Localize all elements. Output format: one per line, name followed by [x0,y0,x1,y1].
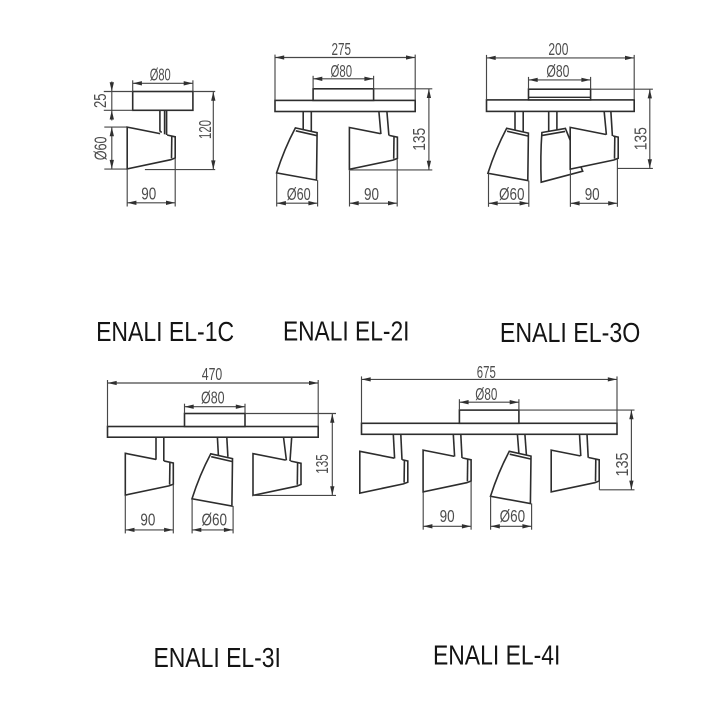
svg-text:ENALI EL-4I: ENALI EL-4I [433,640,561,671]
svg-text:135: 135 [409,128,429,151]
svg-text:470: 470 [202,364,223,384]
svg-text:135: 135 [631,127,651,150]
svg-text:90: 90 [141,184,156,204]
svg-text:90: 90 [440,506,455,526]
svg-text:90: 90 [585,184,600,204]
svg-text:Ø80: Ø80 [546,61,569,81]
svg-text:135: 135 [612,453,632,477]
svg-text:120: 120 [195,120,215,139]
svg-text:ENALI EL-3I: ENALI EL-3I [153,642,281,673]
svg-text:275: 275 [332,39,352,59]
svg-text:Ø60: Ø60 [499,184,525,204]
svg-text:ENALI EL-1C: ENALI EL-1C [96,316,234,347]
svg-text:ENALI EL-3O: ENALI EL-3O [500,317,641,348]
svg-text:Ø80: Ø80 [201,387,225,407]
svg-text:Ø60: Ø60 [500,506,526,526]
svg-text:Ø80: Ø80 [150,65,171,85]
svg-text:Ø60: Ø60 [287,184,311,204]
svg-text:135: 135 [312,454,332,474]
svg-text:Ø60: Ø60 [202,510,228,530]
svg-text:90: 90 [364,184,379,204]
svg-text:ENALI EL-2I: ENALI EL-2I [283,316,410,347]
svg-text:Ø80: Ø80 [475,384,497,404]
svg-text:Ø60: Ø60 [91,137,111,161]
svg-text:200: 200 [548,39,568,59]
svg-text:25: 25 [90,94,110,109]
svg-text:90: 90 [140,510,155,530]
svg-text:Ø80: Ø80 [331,61,353,81]
svg-text:675: 675 [477,362,496,382]
